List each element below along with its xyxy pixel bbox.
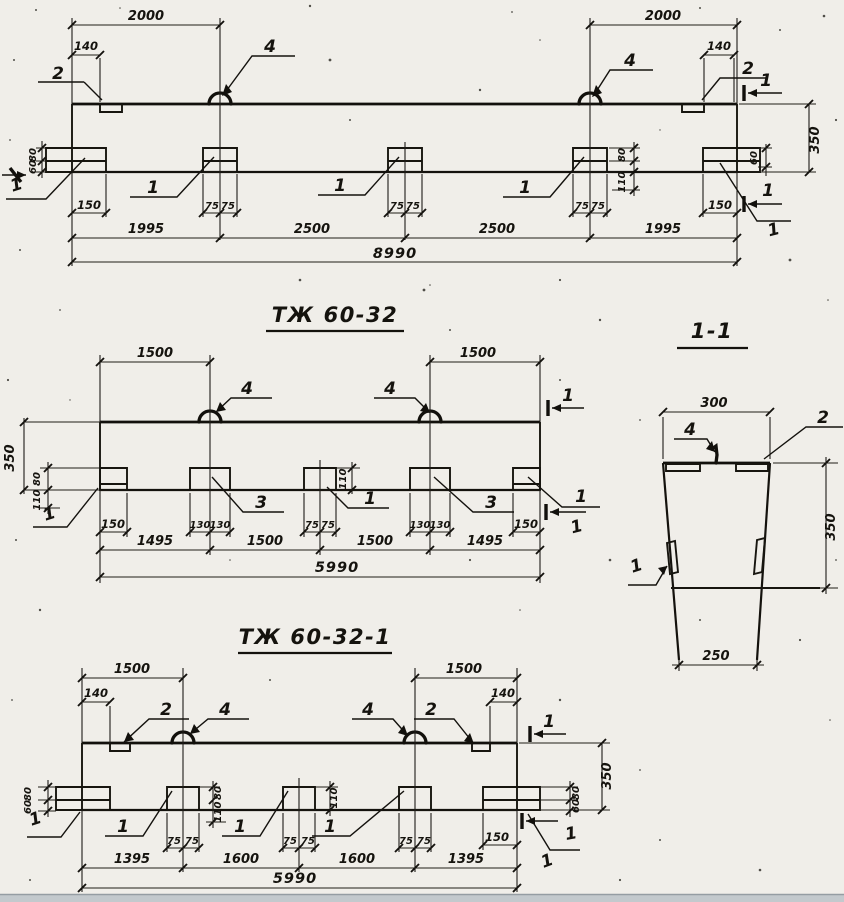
- callout-label: 1: [324, 817, 336, 837]
- callout-label: 3: [255, 493, 267, 513]
- scan-noise: [7, 5, 837, 881]
- dim-label: 1600: [223, 852, 259, 867]
- callout-label: 4: [361, 700, 374, 720]
- callout-leaders: [33, 398, 600, 527]
- dim-label: 80: [213, 786, 224, 800]
- drawing-title: ТЖ 60-32-1: [239, 625, 392, 649]
- dim-label: 130: [430, 520, 451, 531]
- dim-label: 110: [329, 788, 340, 809]
- dim-label: 75: [205, 201, 219, 212]
- dim-label: 2500: [294, 222, 330, 237]
- dim-label: 80: [617, 148, 628, 162]
- dim-label: 2000: [645, 9, 681, 24]
- embedded-items: [46, 148, 760, 172]
- dim-label: 150: [514, 517, 538, 531]
- callout-label: 1: [364, 489, 376, 509]
- section-label: 1: [564, 823, 579, 845]
- section-outline: [663, 463, 838, 660]
- callout-label: 2: [160, 700, 172, 720]
- dim-label: 60: [749, 151, 760, 165]
- dimension-labels: 1500 1500 350 80 110 110 150 130 130 75 …: [3, 346, 538, 576]
- section-label: 1: [760, 71, 772, 91]
- dim-label: 2500: [479, 222, 515, 237]
- dim-label: 75: [591, 201, 605, 212]
- section-label: 1: [562, 386, 574, 406]
- dim-label: 75: [305, 520, 319, 531]
- dim-label: 130: [410, 520, 431, 531]
- dim-label: 250: [702, 649, 729, 664]
- callout-label: 4: [683, 420, 696, 440]
- callout-labels: 4 4 1 3 3 1 1 1 1: [41, 379, 587, 538]
- callout-label: 4: [383, 379, 396, 399]
- callout-label: 3: [485, 493, 497, 513]
- callout-label: 1: [41, 503, 58, 526]
- callout-label: 1: [334, 176, 346, 196]
- callout-label: 2: [817, 408, 829, 428]
- callout-label: 4: [218, 700, 231, 720]
- dim-label-total: 8990: [373, 246, 417, 262]
- callout-labels: 4 2 1: [628, 408, 829, 578]
- section-label: 1: [762, 181, 774, 201]
- lifting-loop-icon: [209, 93, 601, 104]
- dim-label: 140: [707, 39, 731, 53]
- dim-label: 1500: [446, 662, 482, 677]
- dim-label: 75: [167, 836, 181, 847]
- callout-label: 2: [52, 64, 64, 84]
- callout-label: 1: [147, 178, 159, 198]
- scan-edge-band: [0, 895, 844, 902]
- dim-label: 1500: [357, 534, 393, 549]
- drawing-title: 1-1: [691, 319, 733, 343]
- lifting-loop-icon: [199, 411, 441, 422]
- dim-label: 1995: [128, 222, 164, 237]
- dimension-labels: 1500 1500 140 140 80 60 80 110 110 350 8…: [23, 662, 615, 887]
- dim-label: 75: [417, 836, 431, 847]
- dim-label: 1600: [339, 852, 375, 867]
- dim-label: 350: [600, 762, 615, 789]
- dim-label: 150: [77, 198, 101, 212]
- dim-label: 75: [283, 836, 297, 847]
- dim-label: 130: [210, 520, 231, 531]
- section-label: 1: [543, 712, 555, 732]
- dimension-lines: [659, 408, 838, 671]
- section-label: 1: [568, 516, 585, 538]
- lifting-loop-icon: [172, 732, 426, 743]
- callout-label: 2: [425, 700, 437, 720]
- dim-label: 1995: [645, 222, 681, 237]
- section-cut-markers: [522, 726, 566, 829]
- dim-label: 300: [700, 396, 727, 411]
- dim-label: 1500: [247, 534, 283, 549]
- callout-label: 4: [623, 51, 636, 71]
- dim-label-total: 5990: [315, 560, 359, 576]
- callout-leaders: [6, 56, 791, 221]
- dim-label: 75: [399, 836, 413, 847]
- embedded-items: [56, 787, 540, 810]
- dim-label: 75: [321, 520, 335, 531]
- dim-label: 75: [301, 836, 315, 847]
- dim-label: 150: [101, 517, 125, 531]
- callout-label: 1: [628, 555, 645, 578]
- callout-label: 4: [263, 37, 276, 57]
- dim-label: 1500: [460, 346, 496, 361]
- callout-leaders: [628, 427, 843, 585]
- dim-label: 80: [28, 148, 39, 162]
- dim-label: 75: [406, 201, 420, 212]
- callout-label: 1: [538, 850, 556, 873]
- dim-label: 75: [390, 201, 404, 212]
- dim-label: 80: [32, 472, 43, 486]
- callout-label: 1: [765, 219, 782, 241]
- dim-label: 1495: [467, 534, 503, 549]
- dim-label: 1395: [448, 852, 484, 867]
- beam3-elevation: ТЖ 60-32-1: [23, 625, 615, 892]
- drawing-title: ТЖ 60-32: [272, 303, 399, 327]
- dim-label: 110: [338, 469, 349, 490]
- dim-label: 110: [213, 802, 224, 823]
- dimension-labels: 2000 2000 140 140 150 150 75 75 75 75 75…: [28, 9, 823, 262]
- beam1-elevation: 2000 2000 140 140 150 150 75 75 75 75 75…: [2, 9, 823, 266]
- dim-label: 80: [23, 787, 34, 801]
- dim-label: 1500: [114, 662, 150, 677]
- dim-label: 1500: [137, 346, 173, 361]
- dim-label: 140: [491, 686, 515, 700]
- dim-label: 1495: [137, 534, 173, 549]
- dim-label: 60: [571, 799, 582, 813]
- dim-label: 80: [571, 786, 582, 800]
- dim-label: 75: [185, 836, 199, 847]
- dim-label: 75: [221, 201, 235, 212]
- beam2-elevation: ТЖ 60-32: [3, 303, 600, 583]
- embedded-plate-icon: [666, 464, 768, 471]
- scanned-drawing-sheet: 2000 2000 140 140 150 150 75 75 75 75 75…: [0, 0, 844, 902]
- dim-label: 75: [575, 201, 589, 212]
- dim-label: 2000: [128, 9, 164, 24]
- dim-label: 130: [190, 520, 211, 531]
- callout-label: 1: [117, 817, 129, 837]
- dim-label: 150: [708, 198, 732, 212]
- dim-label: 1395: [114, 852, 150, 867]
- dim-label: 350: [3, 444, 18, 471]
- side-embed-items: [667, 538, 765, 574]
- callout-label: 2: [742, 59, 754, 79]
- dim-label: 350: [824, 513, 839, 540]
- section-1-1: 1-1 300: [628, 319, 843, 671]
- drawing-canvas: 2000 2000 140 140 150 150 75 75 75 75 75…: [0, 0, 844, 902]
- dim-label: 350: [808, 126, 823, 153]
- dim-label: 140: [84, 686, 108, 700]
- dim-label: 110: [617, 172, 628, 193]
- dim-label: 150: [485, 830, 509, 844]
- callout-label: 4: [240, 379, 253, 399]
- dim-label: 140: [74, 39, 98, 53]
- callout-label: 1: [8, 174, 25, 197]
- callout-label: 1: [234, 817, 246, 837]
- callout-label: 1: [519, 178, 531, 198]
- callout-label: 1: [575, 487, 587, 507]
- dim-label: 60: [28, 160, 39, 174]
- dim-label-total: 5990: [273, 871, 317, 887]
